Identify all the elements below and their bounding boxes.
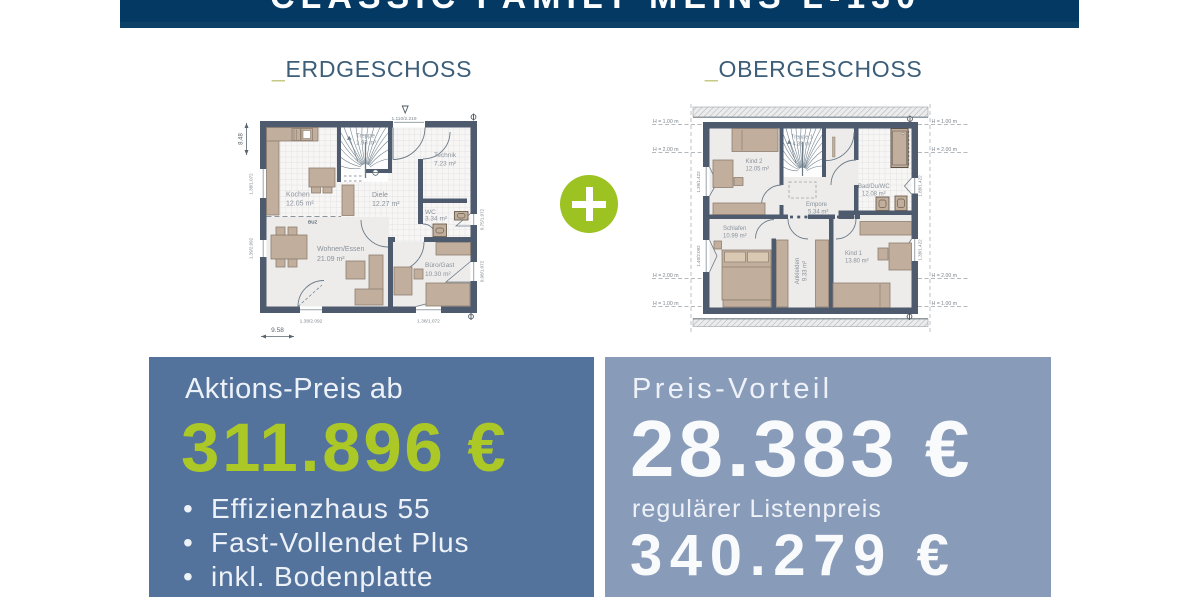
svg-text:1.40/2.092: 1.40/2.092 (696, 245, 701, 267)
svg-text:8.48: 8.48 (239, 133, 245, 145)
svg-text:H = 2.00 m: H = 2.00 m (653, 273, 679, 279)
svg-text:Treppe: Treppe (356, 134, 375, 140)
svg-text:7.23 m²: 7.23 m² (434, 161, 457, 168)
svg-text:H = 2.00 m: H = 2.00 m (932, 273, 958, 279)
svg-text:10.99 m²: 10.99 m² (723, 234, 747, 240)
svg-text:0.98/1.072: 0.98/1.072 (480, 260, 485, 282)
svg-text:Ankleiden: Ankleiden (795, 258, 801, 284)
svg-text:Bad/Du/WC: Bad/Du/WC (858, 184, 890, 190)
svg-text:12.08 m²: 12.08 m² (862, 192, 886, 198)
svg-text:H = 1.00 m: H = 1.00 m (932, 301, 958, 307)
svg-text:Treppe 1: Treppe 1 (791, 135, 813, 141)
svg-text:0.75/1.072: 0.75/1.072 (480, 208, 485, 230)
svg-text:9.33 m²: 9.33 m² (803, 261, 809, 281)
svg-text:12.27 m²: 12.27 m² (372, 201, 400, 208)
svg-text:Empore: Empore (806, 202, 828, 208)
svg-text:3.34 m²: 3.34 m² (425, 216, 448, 223)
svg-text:1.38/1.422: 1.38/1.422 (918, 239, 923, 261)
svg-text:H = 1.00 m: H = 1.00 m (932, 119, 958, 125)
svg-text:13.80 m²: 13.80 m² (845, 259, 869, 265)
svg-text:H = 1.00 m: H = 1.00 m (653, 301, 679, 307)
svg-text:Büro/Gast: Büro/Gast (425, 262, 454, 269)
svg-text:Diele: Diele (372, 192, 388, 199)
svg-text:4.39 m²: 4.39 m² (793, 142, 812, 148)
svg-text:Technik: Technik (434, 152, 457, 159)
svg-text:21.09 m²: 21.09 m² (317, 256, 345, 263)
svg-text:H = 2.00 m: H = 2.00 m (932, 147, 958, 153)
svg-text:BUZ: BUZ (308, 220, 317, 225)
svg-text:Kind 1: Kind 1 (845, 251, 863, 257)
svg-text:12.05 m²: 12.05 m² (746, 167, 770, 173)
svg-text:12.05 m²: 12.05 m² (286, 201, 314, 208)
svg-text:Kind 2: Kind 2 (746, 159, 764, 165)
svg-text:1.39/1.422: 1.39/1.422 (696, 171, 701, 193)
svg-text:1.93 m²: 1.93 m² (356, 141, 376, 147)
svg-text:10.30 m²: 10.30 m² (425, 271, 451, 278)
svg-text:H = 2.00 m: H = 2.00 m (653, 147, 679, 153)
svg-text:Wohnen/Essen: Wohnen/Essen (317, 246, 364, 253)
svg-text:5.34 m²: 5.34 m² (808, 210, 828, 216)
svg-text:1.38/1.072: 1.38/1.072 (417, 319, 440, 325)
svg-text:1.110/2.219: 1.110/2.219 (392, 116, 417, 122)
svg-text:Kochen: Kochen (286, 192, 310, 199)
svg-text:1.88/1.422: 1.88/1.422 (918, 175, 923, 197)
svg-text:1.38/1.072: 1.38/1.072 (249, 173, 254, 195)
svg-text:1.39/2.092: 1.39/2.092 (249, 237, 254, 259)
svg-text:9.58: 9.58 (271, 327, 284, 334)
svg-text:1.38/2.092: 1.38/2.092 (300, 319, 323, 325)
svg-text:Schlafen: Schlafen (723, 226, 746, 232)
svg-text:H = 1.00 m: H = 1.00 m (653, 119, 679, 125)
